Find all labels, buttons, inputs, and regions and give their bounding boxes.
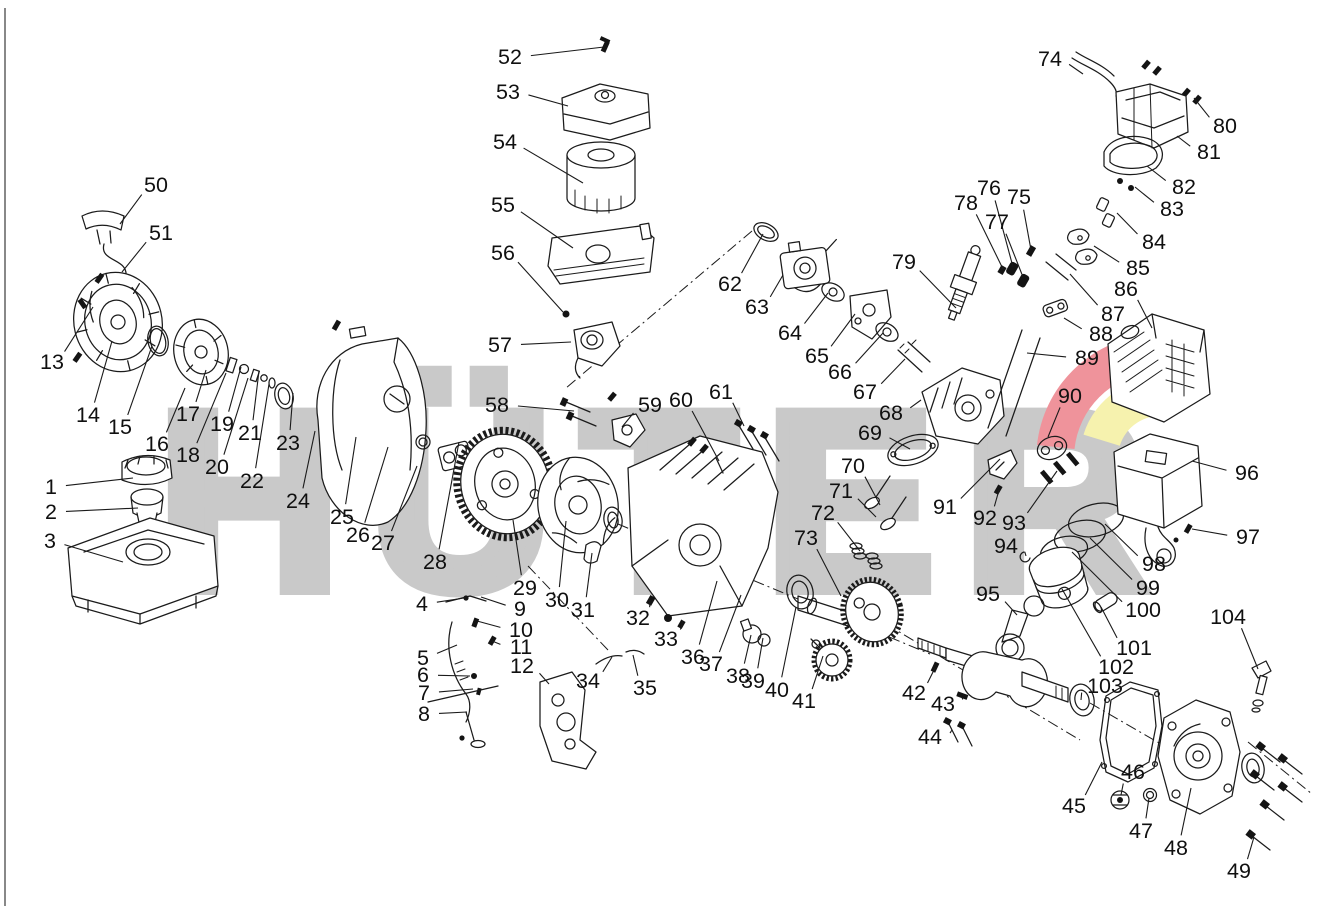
- part-label-100: 100: [1125, 598, 1161, 622]
- part-label-32: 32: [626, 606, 650, 630]
- part-label-15: 15: [108, 415, 132, 439]
- part-label-39: 39: [741, 669, 765, 693]
- part-label-3: 3: [44, 529, 56, 553]
- spacers84: [1091, 197, 1120, 228]
- part-label-41: 41: [792, 689, 816, 713]
- part-label-18: 18: [176, 443, 200, 467]
- washer47: [1144, 789, 1157, 802]
- part-label-66: 66: [828, 360, 852, 384]
- part-label-54: 54: [493, 130, 517, 154]
- part-label-24: 24: [286, 489, 310, 513]
- leader-line-1: [66, 478, 133, 486]
- part-label-14: 14: [76, 403, 100, 427]
- leader-line-104: [1241, 628, 1258, 669]
- dipstick-drawing: [1252, 661, 1271, 712]
- part-label-1: 1: [45, 475, 57, 499]
- muffler-shield-drawing: [1116, 84, 1188, 148]
- part-label-48: 48: [1164, 836, 1188, 860]
- breather-tube-drawing: [1072, 52, 1116, 96]
- muffler-drawing: [1108, 314, 1210, 422]
- part-label-84: 84: [1142, 230, 1166, 254]
- part-label-75: 75: [1007, 185, 1031, 209]
- part-label-29: 29: [513, 576, 537, 600]
- flanges85: [1068, 229, 1097, 264]
- part-label-37: 37: [699, 652, 723, 676]
- gasket62: [751, 219, 781, 245]
- air-filter-screw: [600, 36, 611, 53]
- leader-line-84: [1117, 213, 1137, 234]
- part-label-40: 40: [765, 678, 789, 702]
- part-label-92: 92: [973, 506, 997, 530]
- leader-line-79: [920, 271, 956, 308]
- leader-line-8: [439, 712, 467, 713]
- part-label-28: 28: [423, 550, 447, 574]
- leader-line-57: [521, 342, 571, 344]
- bolt97: [1174, 524, 1193, 543]
- ignition-bits-drawing: [997, 245, 1036, 288]
- control-bracket-drawing: [428, 672, 596, 769]
- part-label-78: 78: [954, 191, 978, 215]
- recoil-starter-drawing: [63, 263, 173, 381]
- part-label-17: 17: [176, 402, 200, 426]
- leader-line-80: [1194, 98, 1209, 117]
- part-label-64: 64: [778, 321, 802, 345]
- part-label-93: 93: [1002, 511, 1026, 535]
- part-label-82: 82: [1172, 175, 1196, 199]
- part-label-30: 30: [545, 588, 569, 612]
- part-label-51: 51: [149, 221, 173, 245]
- part-label-20: 20: [205, 455, 229, 479]
- part-label-104: 104: [1210, 605, 1246, 629]
- leader-line-65: [831, 314, 855, 346]
- fan-cover-drawing: [317, 327, 426, 526]
- leader-line-83: [1135, 187, 1154, 202]
- carburetor-drawing: [778, 237, 842, 295]
- part-label-83: 83: [1160, 197, 1184, 221]
- part-label-34: 34: [576, 669, 600, 693]
- leader-line-49: [1247, 837, 1254, 859]
- part-label-95: 95: [976, 582, 1000, 606]
- starter-handle-drawing: [82, 211, 124, 244]
- air-filter-cover-drawing: [562, 84, 650, 140]
- part-label-47: 47: [1129, 819, 1153, 843]
- part-label-8: 8: [418, 702, 430, 726]
- air-filter-element-drawing: [567, 142, 635, 213]
- part-label-60: 60: [669, 388, 693, 412]
- part-label-26: 26: [346, 523, 370, 547]
- part-label-46: 46: [1121, 760, 1145, 784]
- part-label-61: 61: [709, 380, 733, 404]
- insulator65: [850, 290, 891, 339]
- part-label-81: 81: [1197, 140, 1221, 164]
- dots83: [1117, 178, 1134, 191]
- part-label-76: 76: [977, 176, 1001, 200]
- leader-line-35: [633, 655, 638, 676]
- leader-line-62: [742, 234, 763, 273]
- leader-line-52: [531, 47, 604, 56]
- part-label-23: 23: [276, 431, 300, 455]
- leader-line-88: [1064, 318, 1082, 329]
- part-label-27: 27: [371, 531, 395, 555]
- part-label-53: 53: [496, 80, 520, 104]
- part-label-79: 79: [892, 250, 916, 274]
- part-label-99: 99: [1136, 576, 1160, 600]
- part-label-33: 33: [654, 627, 678, 651]
- part-label-62: 62: [718, 272, 742, 296]
- part-label-94: 94: [994, 534, 1018, 558]
- leader-line-7: [439, 689, 473, 692]
- leader-line-85: [1094, 246, 1119, 262]
- spark-plug-drawing: [940, 242, 988, 323]
- part-label-67: 67: [853, 380, 877, 404]
- part-label-52: 52: [498, 45, 522, 69]
- part-label-43: 43: [931, 692, 955, 716]
- leader-line-5: [437, 645, 457, 653]
- part-label-89: 89: [1075, 346, 1099, 370]
- part-label-55: 55: [491, 193, 515, 217]
- part-label-13: 13: [40, 350, 64, 374]
- leader-line-81: [1177, 136, 1190, 146]
- part-label-63: 63: [745, 295, 769, 319]
- part-label-71: 71: [829, 479, 853, 503]
- leader-line-55: [521, 212, 573, 248]
- part-label-57: 57: [488, 333, 512, 357]
- leader-line-6: [438, 675, 470, 676]
- part-label-2: 2: [45, 500, 57, 524]
- part-label-69: 69: [858, 421, 882, 445]
- leader-line-87: [1070, 274, 1098, 305]
- leader-line-43: [962, 697, 963, 700]
- part-label-98: 98: [1142, 552, 1166, 576]
- part-label-103: 103: [1087, 674, 1123, 698]
- part-label-44: 44: [918, 725, 942, 749]
- part-label-72: 72: [811, 501, 835, 525]
- part-label-35: 35: [633, 676, 657, 700]
- leader-line-103: [1081, 693, 1082, 700]
- leader-line-74: [1069, 64, 1083, 74]
- oil-plug46: [1111, 791, 1129, 809]
- part-label-73: 73: [794, 526, 818, 550]
- part-label-59: 59: [638, 393, 662, 417]
- leader-line-51: [122, 242, 146, 272]
- part-label-80: 80: [1213, 114, 1237, 138]
- leader-line-45: [1085, 762, 1102, 795]
- part-label-68: 68: [879, 401, 903, 425]
- part-label-42: 42: [902, 681, 926, 705]
- leader-line-89: [1027, 353, 1066, 357]
- part-label-88: 88: [1089, 322, 1113, 346]
- rocker88: [1042, 298, 1069, 317]
- leader-line-63: [770, 275, 783, 297]
- air-filter-base-drawing: [548, 223, 654, 284]
- leader-line-44: [950, 730, 952, 733]
- part-label-77: 77: [985, 210, 1009, 234]
- side-bearing-drawing: [1239, 751, 1267, 785]
- part-label-31: 31: [571, 598, 595, 622]
- part-label-74: 74: [1038, 47, 1062, 71]
- fuel-tank-drawing: [68, 518, 218, 624]
- leader-line-75: [1024, 210, 1031, 250]
- fuel-cap-drawing: [122, 455, 172, 484]
- part-label-70: 70: [841, 454, 865, 478]
- part-label-4: 4: [416, 592, 428, 616]
- part-label-45: 45: [1062, 794, 1086, 818]
- part-label-65: 65: [805, 344, 829, 368]
- part-label-16: 16: [145, 432, 169, 456]
- nut56: [563, 311, 570, 318]
- bolts49: [1245, 741, 1302, 850]
- part-label-90: 90: [1058, 384, 1082, 408]
- bolts44: [943, 717, 972, 746]
- crankcase-cover-drawing: [1158, 700, 1240, 814]
- part-label-97: 97: [1236, 525, 1260, 549]
- leader-line-50: [120, 195, 142, 224]
- leader-line-46: [1121, 784, 1123, 795]
- part-label-12: 12: [510, 654, 534, 678]
- screw42: [931, 662, 940, 673]
- part-label-56: 56: [491, 241, 515, 265]
- part-label-91: 91: [933, 495, 957, 519]
- parts-diagram-page: HÜTER: [0, 0, 1339, 912]
- part-label-22: 22: [240, 469, 264, 493]
- leader-line-64: [804, 293, 828, 324]
- part-label-96: 96: [1235, 461, 1259, 485]
- part-label-21: 21: [238, 421, 262, 445]
- part-label-58: 58: [485, 393, 509, 417]
- exploded-diagram-canvas: HÜTER: [0, 0, 1339, 912]
- leader-line-2: [66, 508, 138, 511]
- part-label-50: 50: [144, 173, 168, 197]
- leader-line-97: [1192, 529, 1227, 535]
- part-label-86: 86: [1114, 277, 1138, 301]
- part-label-49: 49: [1227, 859, 1251, 883]
